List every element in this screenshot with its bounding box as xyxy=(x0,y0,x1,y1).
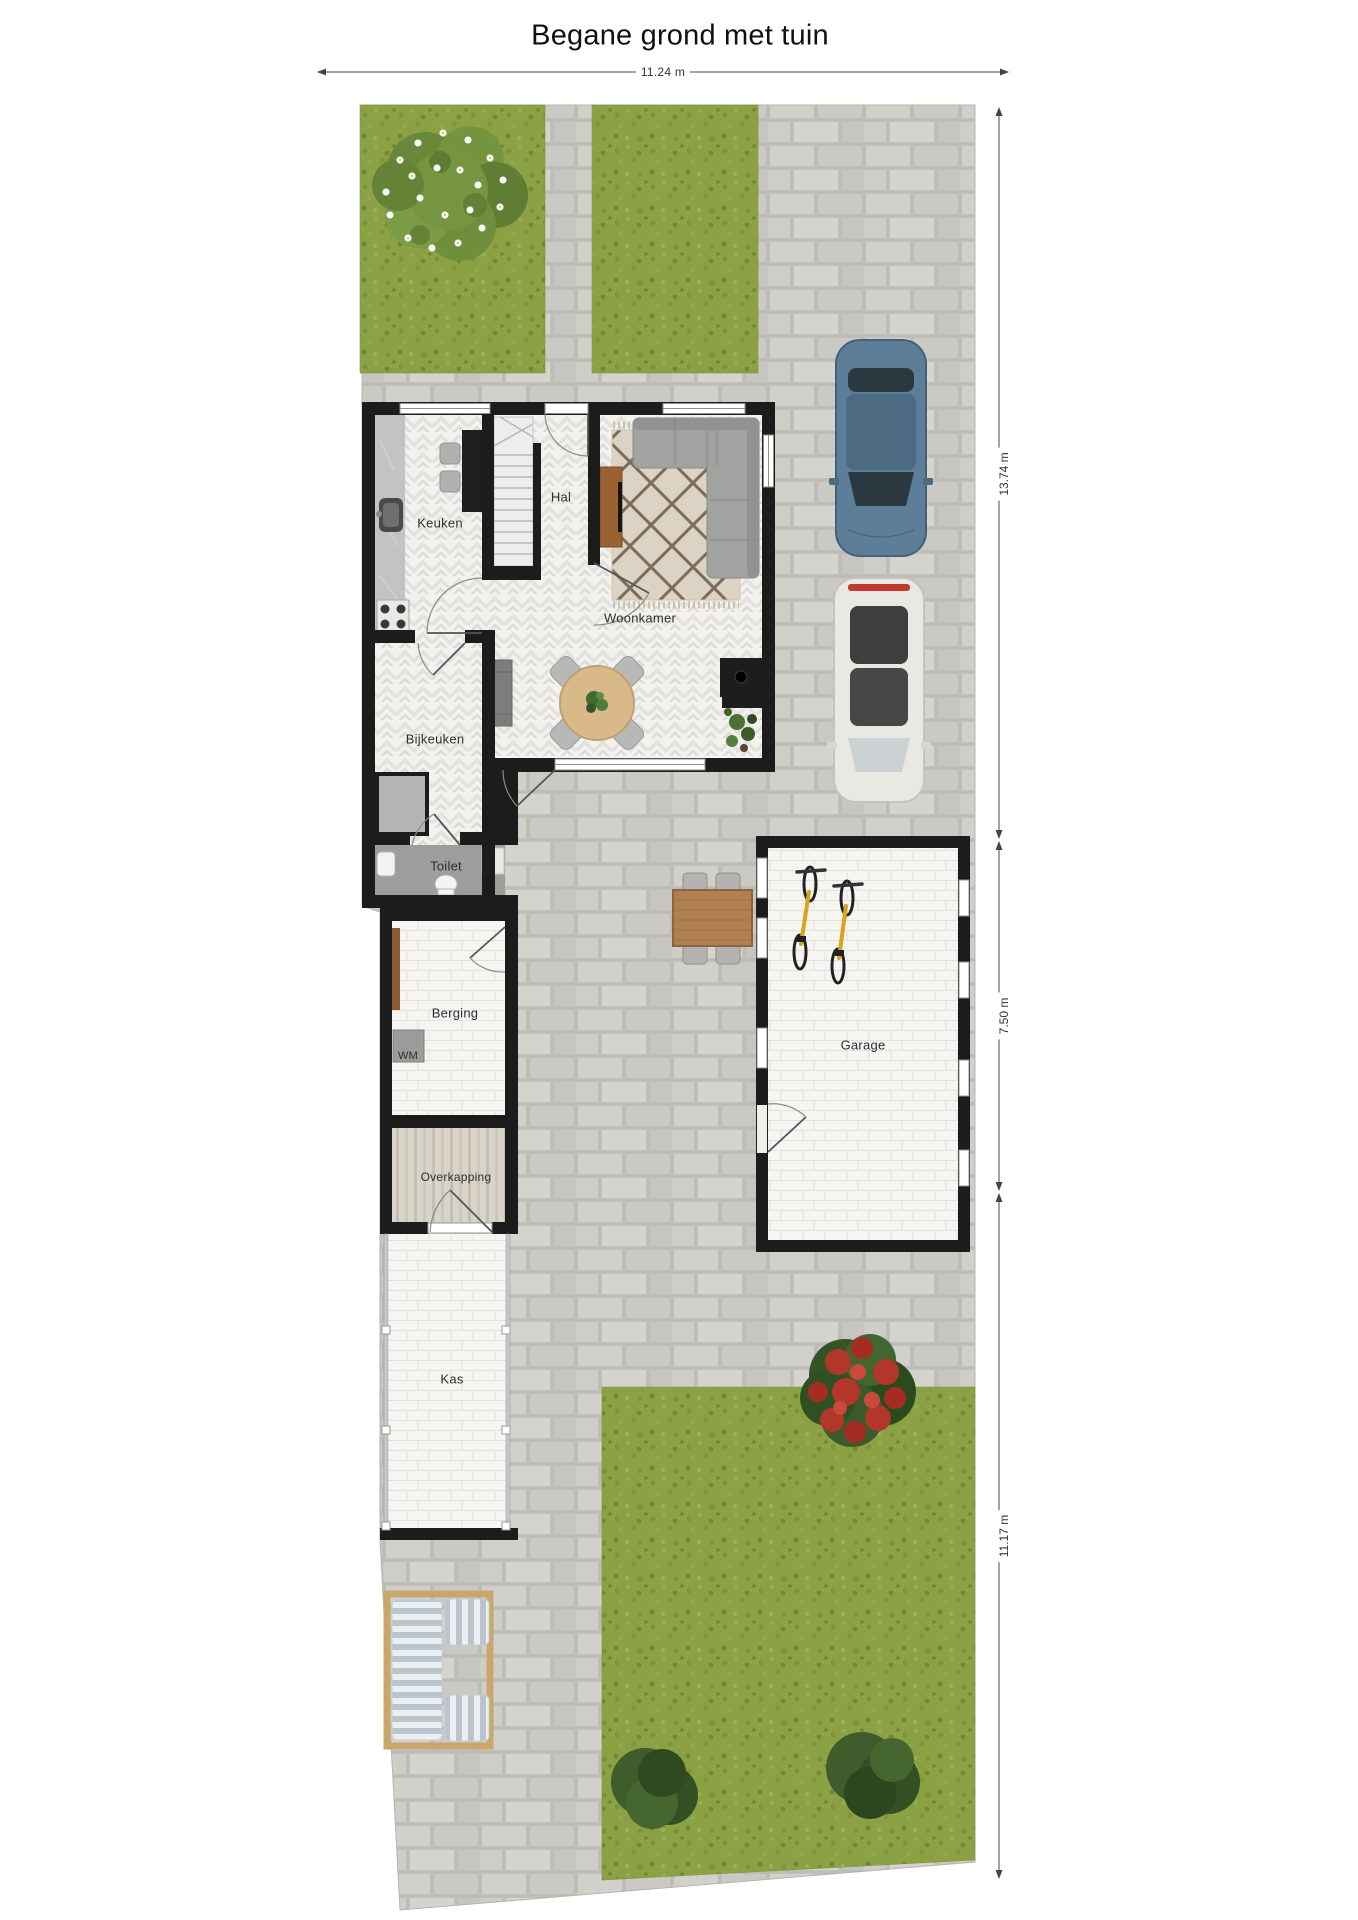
room-label-garage: Garage xyxy=(841,1038,886,1053)
car-blue xyxy=(829,340,933,556)
dimension-right-upper: 13.74 m xyxy=(997,447,1011,500)
floor-plan-page: Begane grond met tuin 11.24 m 13.74 m 7.… xyxy=(0,0,1358,1920)
staircase xyxy=(494,417,533,566)
room-label-toilet: Toilet xyxy=(430,859,462,874)
dimension-right-middle: 7.50 m xyxy=(997,993,1011,1040)
car-white xyxy=(827,578,931,802)
room-label-woonkamer: Woonkamer xyxy=(604,611,676,626)
room-label-kas: Kas xyxy=(440,1372,463,1387)
room-label-bijkeuken: Bijkeuken xyxy=(406,732,465,747)
page-title: Begane grond met tuin xyxy=(531,20,829,53)
room-label-wm: WM xyxy=(398,1050,418,1062)
room-label-hal: Hal xyxy=(551,490,571,505)
room-label-overkapping: Overkapping xyxy=(421,1170,492,1184)
dimension-top-width: 11.24 m xyxy=(636,65,690,79)
dimension-right-lower: 11.17 m xyxy=(997,1510,1011,1562)
floor-plan-graphic xyxy=(0,0,1358,1920)
fireplace xyxy=(720,658,763,708)
room-label-keuken: Keuken xyxy=(417,516,463,531)
tv-sideboard xyxy=(600,467,622,547)
room-label-berging: Berging xyxy=(432,1006,479,1021)
dining-table xyxy=(548,654,647,753)
